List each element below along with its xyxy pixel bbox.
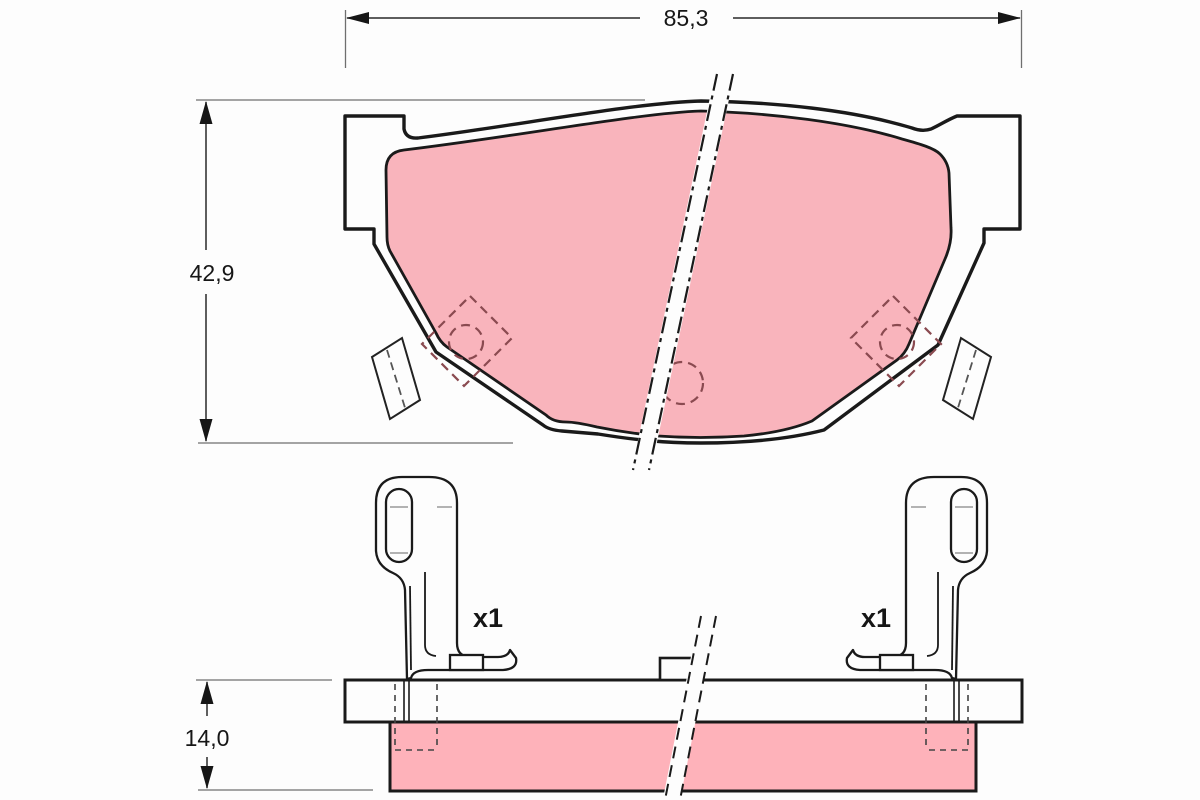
clip-window: [386, 489, 412, 562]
clip-stem-inner-edge: [410, 586, 411, 670]
brake-pad-drawing-svg: 85,3 42,9: [0, 0, 1200, 800]
arrowhead-down: [200, 419, 213, 442]
dimension-width: 85,3: [346, 5, 1022, 68]
clip-right-qty-label: x1: [861, 603, 891, 633]
clip-foot-block: [450, 655, 483, 670]
arrowhead-up: [200, 101, 213, 124]
arrowhead-down: [201, 766, 214, 789]
clip-left-qty-label: x1: [473, 603, 503, 633]
side-view: x1 x1: [345, 477, 1022, 800]
guide-tab-right: [943, 338, 991, 419]
arrowhead-right: [998, 12, 1021, 24]
technical-drawing-canvas: 85,3 42,9: [0, 0, 1200, 800]
arrowhead-up: [201, 681, 214, 704]
height-dimension-label: 42,9: [190, 260, 235, 286]
width-dimension-label: 85,3: [664, 5, 709, 31]
arrowhead-left: [346, 12, 369, 24]
thickness-dimension-label: 14,0: [185, 725, 230, 751]
front-view: [345, 72, 1020, 472]
guide-tab-left: [372, 338, 420, 419]
